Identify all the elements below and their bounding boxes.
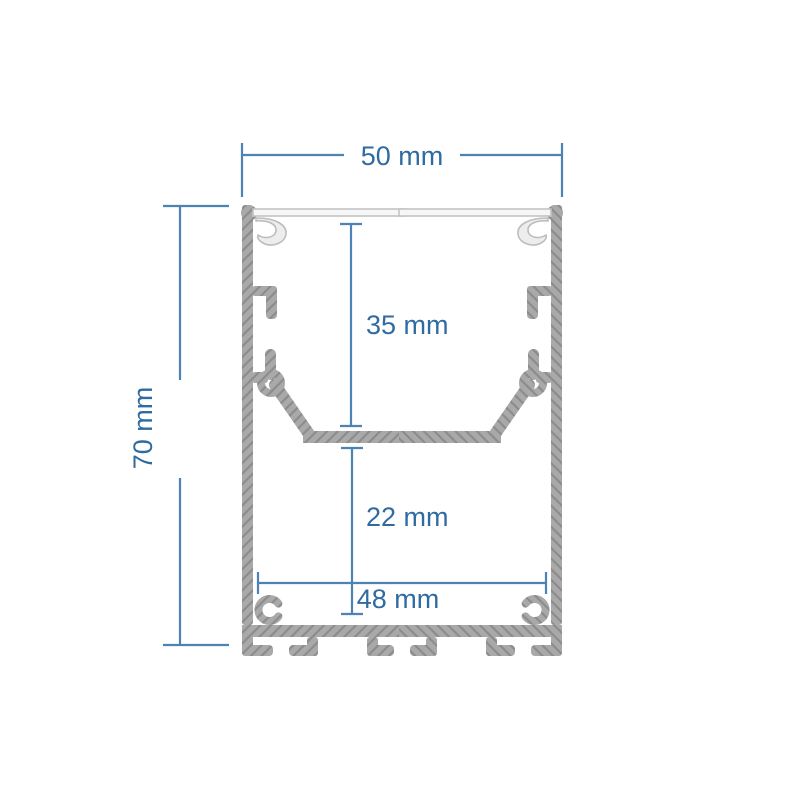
dimension-label-inner-width: 48 mm [357, 584, 440, 614]
dimension-50mm: 50 mm [242, 141, 562, 197]
dimension-70mm: 70 mm [128, 206, 229, 645]
technical-drawing-canvas: 50 mm 70 mm 35 mm 22 mm 48 mm [0, 0, 800, 800]
dimension-label-lower-cavity: 22 mm [366, 502, 449, 532]
dimension-35mm: 35 mm [340, 224, 449, 426]
dimension-label-upper-cavity: 35 mm [366, 310, 449, 340]
dimension-48mm: 48 mm [258, 572, 546, 614]
dimension-label-outer-height: 70 mm [128, 387, 158, 470]
dimension-label-outer-width: 50 mm [361, 141, 444, 171]
profile-drawing: 50 mm 70 mm 35 mm 22 mm 48 mm [0, 0, 800, 800]
